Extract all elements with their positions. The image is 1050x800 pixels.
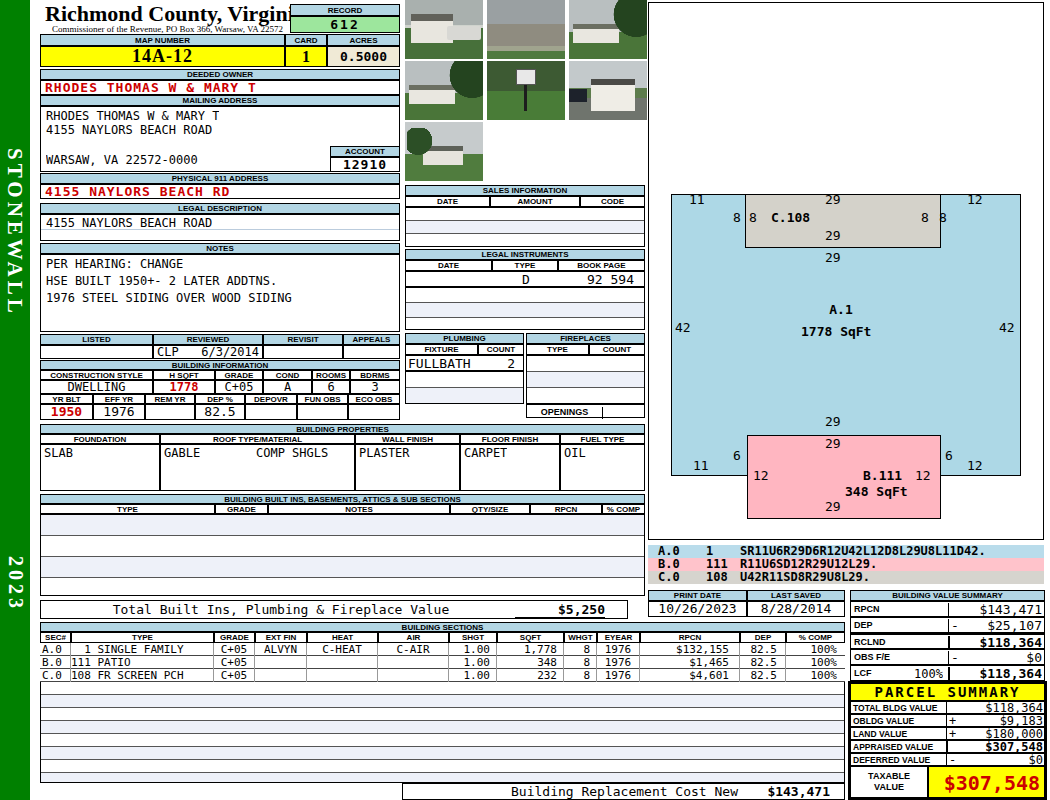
bvs-row-dep: DEP - $25,107 xyxy=(850,617,1045,633)
fixture-count-value: 2 xyxy=(485,357,515,371)
sketch-dim: 29 xyxy=(825,500,841,514)
bs-shgt: 1.00 xyxy=(449,669,497,682)
legend-path: U42R11SD8R29U8L29. xyxy=(740,571,870,584)
parcel-key: APPRAISED VALUE xyxy=(853,742,933,753)
bs-heat xyxy=(307,656,378,669)
built-ins-rpcn-label: RPCN xyxy=(530,504,602,514)
sales-empty-rows xyxy=(405,207,645,247)
physical-address-box: 4155 NAYLORS BEACH RD xyxy=(40,184,400,199)
parcel-row-land: LAND VALUE + $180,000 xyxy=(850,727,1045,740)
mail-city: WARSAW, VA 22572-0000 xyxy=(46,153,198,167)
rooms-label: ROOMS xyxy=(312,370,350,380)
bs-dep: 82.5 xyxy=(740,656,786,669)
district-name: STONEWALL xyxy=(2,148,27,317)
fixture-count-label: COUNT xyxy=(478,344,524,355)
bs-heat xyxy=(307,669,378,682)
bs-eyear: 1976 xyxy=(597,643,640,656)
note-line: 1976 STEEL SIDING OVER WOOD SIDING xyxy=(46,291,292,305)
sketch-dim: 29 xyxy=(825,229,841,243)
property-photo-3[interactable] xyxy=(569,0,647,59)
taxable-value: $307,548 xyxy=(930,772,1040,794)
bs-sqft: 348 xyxy=(497,656,564,669)
instrument-bookpage-label: BOOK PAGE xyxy=(558,260,645,271)
sketch-dim: 12 xyxy=(753,469,769,483)
fuel-type-label: FUEL TYPE xyxy=(560,434,645,444)
grade-value: C+05 xyxy=(215,380,263,394)
bs-col-sqft: SQFT xyxy=(497,632,564,643)
construction-style-value: DWELLING xyxy=(40,380,153,394)
instrument-row: D 92 594 xyxy=(405,271,645,287)
county-title: Richmond County, Virginia xyxy=(45,2,290,26)
ecoobs-value xyxy=(348,404,400,420)
parcel-key: TOTAL BLDG VALUE xyxy=(853,703,937,714)
built-ins-empty-rows xyxy=(40,514,645,596)
reviewed-value-box: CLP 6/3/2014 xyxy=(153,345,263,359)
note-line: HSE BUILT 1950+- 2 LATER ADDTNS. xyxy=(46,274,277,288)
revisit-label: REVISIT xyxy=(263,334,343,345)
bvs-key: RPCN xyxy=(854,604,880,615)
bs-shgt: 1.00 xyxy=(449,656,497,669)
parcel-row-deferred: DEFERRED VALUE - $0 xyxy=(850,753,1045,766)
appeals-label: APPEALS xyxy=(343,334,400,345)
listed-label: LISTED xyxy=(40,334,153,345)
funobs-label: FUN OBS xyxy=(297,394,348,404)
floor-finish-value: CARPET xyxy=(464,446,507,460)
bs-col-dep: DEP xyxy=(740,632,786,643)
legend-code: C.0 xyxy=(658,571,680,584)
openings-row: OPENINGS xyxy=(526,404,645,418)
depovr-value xyxy=(245,404,297,420)
bs-rpcn: $132,155 xyxy=(640,643,740,656)
fuel-type-value-box: OIL xyxy=(560,444,645,491)
deeded-owner-label: DEEDED OWNER xyxy=(40,69,400,80)
parcel-summary-label: PARCEL SUMMARY xyxy=(850,683,1045,701)
bvs-key: RCLND xyxy=(854,637,886,648)
hsqft-label: H SQFT xyxy=(153,370,215,380)
wall-finish-label: WALL FINISH xyxy=(355,434,460,444)
funobs-value xyxy=(297,404,348,420)
fireplace-type-label: TYPE xyxy=(526,344,589,355)
sketch-dim: 12 xyxy=(915,469,931,483)
bvs-value: $143,471 xyxy=(948,603,1042,617)
effyr-label: EFF YR xyxy=(93,394,145,404)
account-value: 12910 xyxy=(330,157,400,172)
tax-year: 2023 xyxy=(4,556,27,612)
listed-value xyxy=(40,345,153,359)
total-built-ins-label: Total Built Ins, Plumbing & Fireplace Va… xyxy=(61,603,501,617)
legal-description-value: 4155 NAYLORS BEACH ROAD xyxy=(46,216,212,230)
card-label: CARD xyxy=(285,34,327,46)
sketch-dim: 42 xyxy=(999,321,1015,335)
bvs-row-rclnd: RCLND $118,364 xyxy=(850,633,1045,649)
sketch-dim: 8 xyxy=(733,211,741,225)
bs-whgt: 8 xyxy=(564,656,597,669)
building-sections-empty-rows xyxy=(40,682,845,783)
yrblt-label: YR BLT xyxy=(40,394,93,404)
parcel-key: OBLDG VALUE xyxy=(853,716,914,727)
legend-num: 108 xyxy=(706,571,728,584)
property-photo-6[interactable] xyxy=(569,61,647,120)
built-ins-notes-label: NOTES xyxy=(268,504,450,514)
floor-finish-label: FLOOR FINISH xyxy=(460,434,560,444)
revisit-value xyxy=(263,345,343,359)
fireplace-count-label: COUNT xyxy=(589,344,645,355)
taxable-value-box: $307,548 xyxy=(928,766,1045,798)
bs-grade: C+05 xyxy=(214,656,255,669)
building-value-summary-label: BUILDING VALUE SUMMARY xyxy=(850,590,1045,601)
effyr-value: 1976 xyxy=(93,404,145,420)
sales-code-label: CODE xyxy=(580,196,645,207)
built-ins-qty-label: QTY/SIZE xyxy=(450,504,530,514)
bvs-value: $118,364 xyxy=(948,667,1042,681)
fixture-value: FULLBATH xyxy=(408,357,471,371)
sketch-area-b-sqft: 348 SqFt xyxy=(845,485,908,499)
bvs-key: LCF xyxy=(854,668,872,679)
district-sidebar xyxy=(0,0,30,800)
bs-extfin xyxy=(255,656,307,669)
notes-label: NOTES xyxy=(40,243,400,254)
wall-finish-value-box: PLASTER xyxy=(355,444,460,491)
hsqft-value: 1778 xyxy=(153,380,215,394)
legal-description-box: 4155 NAYLORS BEACH ROAD xyxy=(40,214,400,241)
plumbing-empty-rows xyxy=(405,371,524,404)
acres-label: ACRES xyxy=(327,34,400,46)
account-label: ACCOUNT xyxy=(330,146,400,157)
last-saved-label: LAST SAVED xyxy=(747,590,845,601)
record-value: 612 xyxy=(290,16,400,33)
building-section-row: B.0 111 PATIO C+05 1.00 348 8 1976 $1,46… xyxy=(40,656,845,669)
taxable-label-line2: VALUE xyxy=(851,782,927,793)
roof-value-box: GABLE COMP SHGLS xyxy=(160,444,355,491)
instrument-type-label: TYPE xyxy=(492,260,558,271)
bvs-value: $118,364 xyxy=(948,636,1042,650)
mail-street: 4155 NAYLORS BEACH ROAD xyxy=(46,123,212,137)
bvs-key: DEP xyxy=(854,620,873,631)
property-photo-7[interactable] xyxy=(405,122,483,181)
cond-label: COND xyxy=(263,370,312,380)
total-built-ins-value: $5,250 xyxy=(515,603,605,619)
foundation-value-box: SLAB xyxy=(40,444,160,491)
bs-type: 111 PATIO xyxy=(71,656,214,669)
plumbing-label: PLUMBING xyxy=(405,333,524,344)
grade-label: GRADE xyxy=(215,370,263,380)
fuel-type-value: OIL xyxy=(564,446,586,460)
sketch-dim: 6 xyxy=(945,449,953,463)
bs-extfin: ALVYN xyxy=(255,643,307,656)
last-saved-value: 8/28/2014 xyxy=(747,601,845,617)
bs-sec: B.0 xyxy=(40,656,71,669)
reviewed-label: REVIEWED xyxy=(153,334,263,345)
notes-box: PER HEARING: CHANGE HSE BUILT 1950+- 2 L… xyxy=(40,254,400,332)
roof-type-value: GABLE xyxy=(164,446,200,460)
bvs-value: $0 xyxy=(948,651,1042,665)
building-section-row: C.0 108 FR SCREEN PCH C+05 1.00 232 8 19… xyxy=(40,669,845,682)
bs-type: 1 SINGLE FAMILY xyxy=(71,643,214,656)
remyr-label: REM YR xyxy=(145,394,195,404)
bs-heat: C-HEAT xyxy=(307,643,378,656)
fireplaces-label: FIREPLACES xyxy=(526,333,645,344)
depovr-label: DEPOVR xyxy=(245,394,297,404)
bs-comp: 100% xyxy=(786,656,845,669)
map-number-value: 14A-12 xyxy=(40,46,285,67)
parcel-key: DEFERRED VALUE xyxy=(853,755,930,766)
bvs-pct: 100% xyxy=(891,667,943,681)
bs-rpcn: $1,465 xyxy=(640,656,740,669)
bs-dep: 82.5 xyxy=(740,643,786,656)
bs-extfin xyxy=(255,669,307,682)
bvs-value: $25,107 xyxy=(948,619,1042,633)
bs-grade: C+05 xyxy=(214,669,255,682)
instrument-type-value: D xyxy=(493,273,559,287)
building-properties-label: BUILDING PROPERTIES xyxy=(40,424,645,434)
parcel-row-totalbldg: TOTAL BLDG VALUE $118,364 xyxy=(850,701,1045,714)
bs-air: C-AIR xyxy=(378,643,449,656)
instrument-date-label: DATE xyxy=(405,260,492,271)
bvs-row-lcf: LCF 100% $118,364 xyxy=(850,665,1045,681)
bdrms-value: 3 xyxy=(350,380,400,394)
taxable-value-label-box: TAXABLE VALUE xyxy=(850,766,928,798)
parcel-value: $0 xyxy=(946,754,1043,766)
bs-col-air: AIR xyxy=(378,632,449,643)
sketch-section-b xyxy=(747,435,941,519)
sketch-dim: 29 xyxy=(825,437,841,451)
bs-col-extfin: EXT FIN xyxy=(255,632,307,643)
bs-sec: C.0 xyxy=(40,669,71,682)
yrblt-value: 1950 xyxy=(40,404,93,420)
reviewer-initials: CLP xyxy=(157,346,179,358)
bs-col-comp: % COMP xyxy=(786,632,845,643)
sketch-dim: 12 xyxy=(967,193,983,207)
parcel-row-obldg: OBLDG VALUE + $9,183 xyxy=(850,714,1045,727)
property-photo-5[interactable] xyxy=(487,61,565,120)
sketch-dim: 29 xyxy=(825,193,841,207)
foundation-value: SLAB xyxy=(44,446,73,460)
fireplaces-empty-rows xyxy=(526,355,645,404)
bvs-row-rpcn: RPCN $143,471 xyxy=(850,601,1045,617)
bs-grade: C+05 xyxy=(214,643,255,656)
bs-dep: 82.5 xyxy=(740,669,786,682)
record-label: RECORD xyxy=(290,4,400,16)
map-number-label: MAP NUMBER xyxy=(40,34,285,46)
sketch-dim: 42 xyxy=(675,321,691,335)
instrument-bookpage-value: 92 594 xyxy=(559,273,634,287)
sketch-dim: 8 xyxy=(921,211,929,225)
sketch-dim: 8 xyxy=(939,211,947,225)
bs-air xyxy=(378,669,449,682)
instrument-empty-rows xyxy=(405,287,645,330)
parcel-value: $118,364 xyxy=(946,702,1043,714)
building-section-row: A.0 1 SINGLE FAMILY C+05 ALVYN C-HEAT C-… xyxy=(40,643,845,656)
print-date-value: 10/26/2023 xyxy=(648,601,747,617)
built-ins-type-label: TYPE xyxy=(40,504,215,514)
rcn-value: $143,471 xyxy=(740,785,830,799)
bs-col-type: TYPE xyxy=(71,632,214,643)
property-photo-4[interactable] xyxy=(405,61,483,120)
foundation-label: FOUNDATION xyxy=(40,434,160,444)
property-photo-2[interactable] xyxy=(487,0,565,59)
building-sections-label: BUILDING SECTIONS xyxy=(40,622,845,632)
property-photo-1[interactable] xyxy=(405,0,483,59)
bs-col-whgt: WHGT xyxy=(564,632,597,643)
parcel-row-appraised: APPRAISED VALUE $307,548 xyxy=(850,740,1045,753)
built-ins-label: BUILDING BUILT INS, BASEMENTS, ATTICS & … xyxy=(40,494,645,504)
print-date-label: PRINT DATE xyxy=(648,590,747,601)
bs-type: 108 FR SCREEN PCH xyxy=(71,669,214,682)
building-information-label: BUILDING INFORMATION xyxy=(40,360,400,370)
sketch-area-b-label: B.111 xyxy=(863,469,902,483)
divider xyxy=(41,229,399,230)
note-line: PER HEARING: CHANGE xyxy=(46,257,183,271)
parcel-value: $9,183 xyxy=(946,715,1043,727)
sales-amount-label: AMOUNT xyxy=(490,196,580,207)
cond-value: A xyxy=(263,380,312,394)
dep-pct-value: 82.5 xyxy=(195,404,245,420)
bs-eyear: 1976 xyxy=(597,656,640,669)
construction-style-label: CONSTRUCTION STYLE xyxy=(40,370,153,380)
taxable-label-line1: TAXABLE xyxy=(851,771,927,782)
appeals-value xyxy=(343,345,400,359)
sales-information-label: SALES INFORMATION xyxy=(405,185,645,196)
legal-instruments-label: LEGAL INSTRUMENTS xyxy=(405,249,645,260)
acres-value: 0.5000 xyxy=(327,46,400,67)
bs-sqft: 232 xyxy=(497,669,564,682)
sketch-area-c-label: C.108 xyxy=(771,211,810,225)
built-ins-comp-label: % COMP xyxy=(602,504,645,514)
bs-col-sec: SEC# xyxy=(40,632,71,643)
roof-label: ROOF TYPE/MATERIAL xyxy=(160,434,355,444)
bs-col-eyear: EYEAR xyxy=(597,632,640,643)
bs-whgt: 8 xyxy=(564,669,597,682)
mailing-address-label: MAILING ADDRESS xyxy=(40,95,400,106)
plumbing-row: FULLBATH 2 xyxy=(405,355,524,371)
openings-label: OPENINGS xyxy=(527,407,603,419)
bdrms-label: BDRMS xyxy=(350,370,400,380)
remyr-value xyxy=(145,404,195,420)
sketch-dim: 12 xyxy=(967,459,983,473)
sales-date-label: DATE xyxy=(405,196,490,207)
roof-material-value: COMP SHGLS xyxy=(256,446,328,460)
bvs-key: OBS F/E xyxy=(854,652,890,663)
physical-address-label: PHYSICAL 911 ADDRESS xyxy=(40,173,400,184)
ecoobs-label: ECO OBS xyxy=(348,394,400,404)
sketch-dim: 11 xyxy=(689,193,705,207)
floor-finish-value-box: CARPET xyxy=(460,444,560,491)
bvs-row-obs: OBS F/E - $0 xyxy=(850,649,1045,665)
review-date: 6/3/2014 xyxy=(189,346,259,358)
bs-comp: 100% xyxy=(786,643,845,656)
bs-col-rpcn: RPCN xyxy=(640,632,740,643)
bs-sqft: 1,778 xyxy=(497,643,564,656)
sketch-area-a-label: A.1 xyxy=(819,303,863,317)
rooms-value: 6 xyxy=(312,380,350,394)
sketch-dim: 8 xyxy=(749,211,757,225)
sketch-dim: 29 xyxy=(825,251,841,265)
bs-col-heat: HEAT xyxy=(307,632,378,643)
bs-sec: A.0 xyxy=(40,643,71,656)
total-built-ins-box: Total Built Ins, Plumbing & Fireplace Va… xyxy=(40,600,628,619)
property-record-card: STONEWALL 2023 Richmond County, Virginia… xyxy=(0,0,1050,800)
bs-whgt: 8 xyxy=(564,643,597,656)
bs-comp: 100% xyxy=(786,669,845,682)
mail-name: RHODES THOMAS W & MARY T xyxy=(46,109,219,123)
county-subtitle: Commissioner of the Revenue, PO Box 366,… xyxy=(40,24,295,34)
bs-rpcn: $4,601 xyxy=(640,669,740,682)
sketch-dim: 11 xyxy=(693,459,709,473)
dep-pct-label: DEP % xyxy=(195,394,245,404)
parcel-value: $180,000 xyxy=(946,728,1043,740)
bs-air xyxy=(378,656,449,669)
physical-address-value: 4155 NAYLORS BEACH RD xyxy=(45,185,230,198)
sketch-canvas: 11 8 8 C.108 29 29 8 8 12 29 42 A.1 1778… xyxy=(648,2,1044,540)
sketch-dim: 6 xyxy=(733,449,741,463)
bs-shgt: 1.00 xyxy=(449,643,497,656)
deeded-owner-box: RHODES THOMAS W & MARY T xyxy=(40,80,400,95)
bs-eyear: 1976 xyxy=(597,669,640,682)
deeded-owner-value: RHODES THOMAS W & MARY T xyxy=(45,81,257,95)
sketch-dim: 29 xyxy=(825,415,841,429)
legal-description-label: LEGAL DESCRIPTION xyxy=(40,203,400,214)
fixture-label: FIXTURE xyxy=(405,344,478,355)
sketch-area-a-sqft: 1778 SqFt xyxy=(801,325,871,339)
rcn-box: Building Replacement Cost New $143,471 xyxy=(402,783,845,800)
built-ins-grade-label: GRADE xyxy=(215,504,268,514)
parcel-key: LAND VALUE xyxy=(853,729,907,740)
card-value: 1 xyxy=(285,46,327,67)
bs-col-shgt: SHGT xyxy=(449,632,497,643)
parcel-value: $307,548 xyxy=(946,741,1043,753)
sketch-legend-row-c: C.0 108 U42R11SD8R29U8L29. xyxy=(648,571,1044,584)
wall-finish-value: PLASTER xyxy=(359,446,410,460)
bs-col-grade: GRADE xyxy=(214,632,255,643)
